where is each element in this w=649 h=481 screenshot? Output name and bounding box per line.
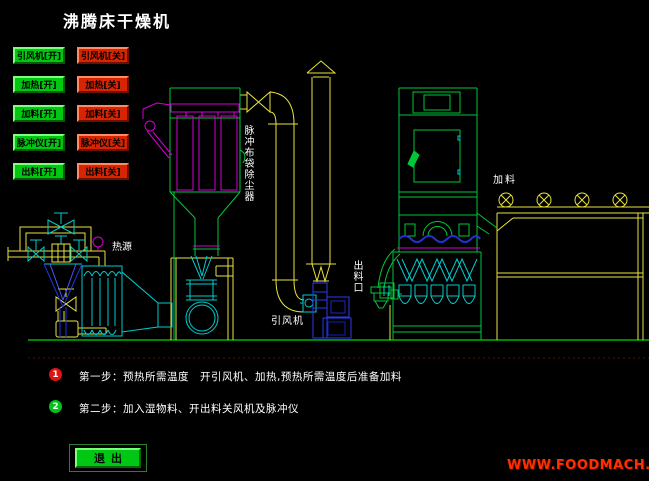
discharge-on-button[interactable]: 出料[开]	[13, 163, 65, 180]
discharge-graphic	[371, 249, 402, 308]
ground-line	[28, 340, 649, 358]
website-watermark: WWW.FOODMACH.CN	[507, 458, 649, 473]
page-title: 沸腾床干燥机	[63, 8, 171, 32]
exhaust-stack-graphic	[306, 61, 336, 281]
step-1-badge: 1	[49, 368, 62, 381]
feed-on-button[interactable]: 加料[开]	[13, 105, 65, 122]
discharge-off-button[interactable]: 出料[关]	[77, 163, 129, 180]
exit-button-frame: 退出	[69, 444, 147, 472]
heat-on-button[interactable]: 加热[开]	[13, 76, 65, 93]
bag-filter-label: 脉冲布袋除尘器	[242, 125, 252, 202]
piping-graphic	[8, 61, 649, 340]
fan-label: 引风机	[271, 317, 304, 327]
step-2-text: 第二步：加入湿物料、开出料关风机及脉冲仪	[79, 401, 299, 416]
rotary-valve-frame	[171, 258, 233, 340]
feed-label: 加料	[493, 176, 517, 186]
fan-on-button[interactable]: 引风机[开]	[13, 47, 65, 64]
feed-off-button[interactable]: 加料[关]	[77, 105, 129, 122]
conveyor-graphic	[497, 193, 649, 340]
fan-off-button[interactable]: 引风机[关]	[77, 47, 129, 64]
pulse-on-button[interactable]: 脉冲仪[开]	[13, 134, 65, 151]
pulse-off-button[interactable]: 脉冲仪[关]	[77, 134, 129, 151]
discharge-port-label: 出料口	[351, 260, 361, 293]
exit-button[interactable]: 退出	[75, 448, 141, 468]
heat-off-button[interactable]: 加热[关]	[77, 76, 129, 93]
step-2-badge: 2	[49, 400, 62, 413]
dryer-graphic	[380, 88, 497, 340]
heat-source-label: 热源	[112, 243, 132, 253]
bag-filter-graphic	[170, 88, 245, 340]
hmi-screen: { "title": "沸腾床干燥机", "controls": { "rows…	[0, 0, 649, 481]
pulse-header-graphic	[93, 103, 480, 251]
step-1-text: 第一步：预热所需温度 开引风机、加热,预热所需温度后准备加料	[79, 369, 402, 384]
